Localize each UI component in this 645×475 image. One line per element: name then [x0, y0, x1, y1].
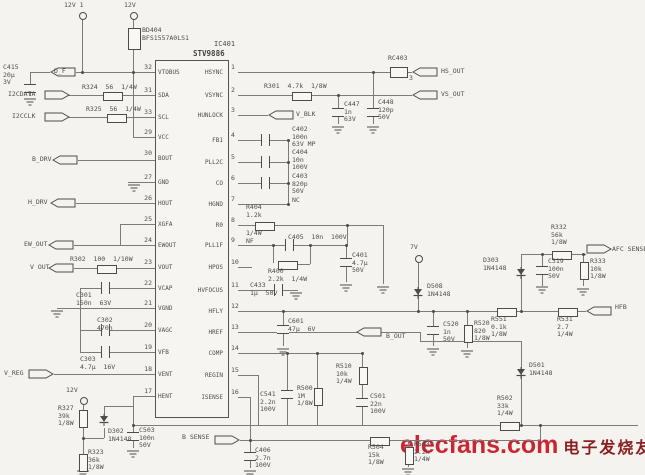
pin-number: 20 — [136, 321, 152, 329]
label-ew_out: EW_OUT — [24, 241, 47, 249]
resistor — [79, 454, 88, 472]
label-r325: R325 56 1/4W — [86, 106, 141, 114]
pin-name-comp: COMP — [160, 350, 223, 357]
wire — [54, 374, 155, 375]
wire — [373, 72, 374, 108]
pin-name-hgnd: HGND — [160, 201, 223, 208]
wire — [30, 72, 50, 73]
ground-icon — [24, 98, 36, 107]
label-v_reg: V_REG — [4, 370, 24, 378]
label-c448: C448 120p 50V — [378, 99, 394, 122]
wire — [273, 225, 383, 226]
wire — [521, 254, 522, 311]
wire — [250, 397, 251, 440]
pin-number: 5 — [231, 153, 235, 161]
pin-number: 10 — [231, 258, 239, 266]
terminal — [79, 12, 87, 20]
pin-name-href: HREF — [160, 329, 223, 336]
pin-number: 13 — [231, 323, 239, 331]
wire — [78, 160, 155, 161]
wire — [108, 330, 155, 331]
label-3: 3 — [409, 75, 413, 83]
wire — [57, 308, 155, 309]
ground-icon — [340, 284, 352, 293]
signal-flag-icon — [412, 67, 438, 77]
junction-dot — [132, 424, 135, 427]
ground-icon — [402, 468, 414, 475]
signal-flag-icon — [48, 240, 74, 250]
pin-name-pll1f: PLL1F — [160, 242, 223, 249]
pin-name-hsync: HSYNC — [160, 69, 223, 76]
pin-number: 8 — [231, 216, 235, 224]
label-d302: D302 1N4148 — [108, 428, 131, 443]
schematic-canvas: IC401 STV9886 elecfans.com电子发烧友 12V 112V… — [0, 0, 645, 475]
wire — [76, 72, 155, 73]
signal-flag-icon — [52, 155, 78, 165]
resistor — [97, 265, 117, 274]
wire — [80, 352, 101, 353]
label-r301: R301 4.7k 1/8W — [264, 83, 327, 91]
ic-part-number: STV9886 — [193, 49, 225, 58]
resistor — [314, 388, 323, 406]
label-d501: D501 1N4148 — [529, 362, 552, 377]
label-r332: R332 56k 1/8W — [551, 224, 567, 247]
wire — [258, 375, 259, 425]
junction-dot — [287, 203, 290, 206]
junction-dot — [432, 310, 435, 313]
pin-number: 30 — [136, 149, 152, 157]
label-r504: R504 15k 1/8W — [368, 444, 384, 467]
wire — [30, 72, 31, 84]
pin-number: 29 — [136, 128, 152, 136]
pin-number: 33 — [136, 108, 152, 116]
wire — [238, 183, 261, 184]
resistor — [292, 92, 312, 101]
label-r551: R551 0.1k 1/8W — [491, 316, 507, 339]
wire — [238, 95, 292, 96]
junction-dot — [316, 352, 319, 355]
wire — [76, 203, 155, 204]
diode-icon — [412, 287, 424, 299]
resistor — [107, 114, 127, 123]
label-c405: C405 10n 100V — [288, 234, 347, 242]
label-c447: C447 1n 63V — [344, 101, 360, 124]
junction-dot — [346, 224, 349, 227]
wire — [120, 224, 121, 245]
junction-dot — [520, 424, 523, 427]
junction-dot — [81, 71, 84, 74]
capacitor — [281, 390, 293, 399]
wire — [310, 245, 311, 264]
wire — [268, 183, 288, 184]
wire — [121, 95, 155, 96]
wire — [238, 397, 250, 398]
pin-number: 23 — [136, 258, 152, 266]
label-r404: R404 1.2k — [246, 204, 262, 219]
watermark: elecfans.com电子发烧友 — [400, 431, 645, 460]
signal-flag-icon — [28, 369, 54, 379]
wire — [388, 440, 540, 441]
signal-flag-icon — [586, 306, 612, 316]
label-r324: R324 56 1/4W — [82, 84, 137, 92]
wire — [540, 425, 541, 440]
ic-reference-label: IC401 — [214, 40, 235, 48]
ground-icon — [461, 350, 473, 359]
label-r502: R502 33k 1/4W — [497, 395, 513, 418]
wire — [346, 265, 347, 282]
wire — [420, 332, 421, 341]
wire — [120, 224, 155, 225]
label-1/4w: 1/4W NF — [246, 230, 262, 245]
label-r510: R510 10k 1/4W — [336, 363, 352, 386]
junction-dot — [309, 244, 312, 247]
wire — [82, 18, 83, 72]
label-c301: C301 150n 63V — [76, 292, 111, 307]
signal-flag-icon — [48, 263, 74, 273]
signal-flag-icon — [50, 198, 76, 208]
pin-name-hvfocus: HVFOCUS — [160, 287, 223, 294]
wire — [133, 396, 155, 397]
wire — [433, 311, 434, 326]
wire — [362, 383, 363, 398]
pin-number: 22 — [136, 279, 152, 287]
pin-number: 19 — [136, 343, 152, 351]
capacitor — [261, 134, 270, 146]
pin-name-hunlock: HUNLOCK — [160, 112, 223, 119]
label-c402: C402 100n 63V MP — [292, 126, 315, 149]
label-v_blk: V_BLK — [296, 111, 316, 119]
label-b_drv: B_DRV — [32, 156, 52, 164]
pin-number: 25 — [136, 215, 152, 223]
wire — [83, 438, 104, 439]
pin-number: 2 — [231, 86, 235, 94]
junction-dot — [249, 439, 252, 442]
diode-icon — [515, 267, 527, 279]
resistor — [500, 422, 520, 431]
wire — [108, 288, 155, 289]
signal-flag-icon — [214, 435, 240, 445]
label-c401: C401 4.7µ 50V — [352, 252, 368, 275]
wire — [64, 117, 107, 118]
wire — [408, 440, 409, 447]
wire — [238, 353, 362, 354]
resistor — [103, 92, 123, 101]
wire — [292, 245, 347, 246]
wire — [521, 341, 522, 425]
component-box — [128, 28, 141, 50]
wire — [125, 117, 155, 118]
pin-name-co: CO — [160, 180, 223, 187]
wire — [281, 290, 298, 291]
label-12v: 12V — [124, 2, 136, 10]
label-c501: C501 22n 100V — [370, 393, 386, 416]
label-r327: R327 39k 1/8W — [58, 405, 74, 428]
wire — [268, 162, 288, 163]
ground-icon — [51, 310, 63, 319]
wire — [521, 254, 552, 255]
wire — [310, 95, 412, 96]
label-c433: C433 1µ 50V — [250, 282, 277, 297]
pin-number: 27 — [136, 173, 152, 181]
wire — [238, 267, 252, 268]
wire — [273, 245, 274, 263]
label-c319: C319 100n 50V — [548, 258, 564, 281]
label-c403: C403 820p 50V — [292, 173, 308, 196]
junction-dot — [372, 71, 375, 74]
pin-name-pll2c: PLL2C — [160, 159, 223, 166]
junction-dot — [417, 310, 420, 313]
junction-dot — [287, 139, 290, 142]
wire — [128, 182, 155, 183]
pin-number: 9 — [231, 236, 235, 244]
wire — [133, 396, 134, 425]
junction-dot — [361, 352, 364, 355]
junction-dot — [82, 437, 85, 440]
capacitor — [340, 258, 352, 267]
junction-dot — [345, 244, 348, 247]
label-rc403: RC403 — [388, 55, 408, 63]
wire — [238, 72, 390, 73]
wire — [288, 140, 289, 204]
label-bd404: BD404 BFS1557A0LS1 — [142, 27, 189, 42]
watermark-cjk: 电子发烧友 — [563, 438, 645, 457]
capacitor — [332, 108, 344, 117]
pin-name-fb1: FB1 — [160, 137, 223, 144]
pin-number: 11 — [231, 281, 239, 289]
label-i2cclk: I2CCLK — [12, 113, 35, 121]
wire — [238, 140, 261, 141]
pin-number: 14 — [231, 344, 239, 352]
label-h_drv: H_DRV — [28, 199, 48, 207]
wire — [347, 225, 348, 245]
wire — [250, 440, 370, 441]
label-c406: C406 2.7n 100V — [255, 447, 271, 470]
label-c503: C503 100n 50V — [139, 427, 155, 450]
ground-icon — [290, 292, 302, 301]
label-r520: R520 820 1/8W — [474, 320, 490, 343]
resistor — [359, 367, 368, 385]
label-c404: C404 10n 100V — [292, 149, 308, 172]
terminal — [415, 255, 423, 263]
pin-number: 3 — [231, 106, 235, 114]
label-c302: C302 470n — [97, 317, 113, 332]
wire — [238, 115, 268, 116]
pin-number: 32 — [136, 63, 152, 71]
wire — [287, 353, 288, 390]
pin-number: 16 — [231, 388, 239, 396]
label-c415: C415 20µ 3V — [3, 64, 19, 87]
wire — [104, 406, 133, 407]
wire — [80, 288, 101, 289]
resistor — [79, 410, 88, 428]
ground-icon — [536, 286, 548, 295]
component-box — [390, 67, 408, 78]
junction-dot — [582, 253, 585, 256]
pin-number: 15 — [231, 366, 239, 374]
junction-dot — [287, 182, 290, 185]
signal-flag-icon — [44, 90, 70, 100]
wire — [268, 140, 288, 141]
ground-icon — [128, 184, 140, 193]
wire — [317, 404, 318, 425]
label-c303: C303 4.7µ 16V — [80, 356, 115, 371]
signal-flag-icon — [44, 112, 70, 122]
label-r531: R531 2.7 1/4W — [557, 316, 573, 339]
wire — [362, 353, 363, 367]
ground-icon — [377, 286, 389, 295]
pin-number: 21 — [136, 299, 152, 307]
label-d_f: D_F — [54, 68, 66, 76]
ground-icon — [577, 288, 589, 297]
wire — [115, 268, 155, 269]
wire — [317, 353, 318, 388]
pin-name-hfly: HFLY — [160, 308, 223, 315]
ground-icon — [367, 126, 379, 135]
label-r333: R333 10k 1/8W — [590, 258, 606, 281]
label-c520: C520 1n 50V — [443, 321, 459, 344]
label-nc: NC — [292, 197, 300, 205]
wire — [418, 261, 419, 311]
junction-dot — [132, 71, 135, 74]
label-c601: C601 47µ 6V — [288, 318, 315, 333]
wire — [287, 397, 288, 425]
capacitor — [261, 156, 270, 168]
label-r323: R323 36k 1/8W — [88, 449, 104, 472]
wire — [517, 425, 638, 426]
junction-dot — [282, 310, 285, 313]
ground-icon — [332, 126, 344, 135]
label-12v: 12V 1 — [64, 2, 84, 10]
pin-number: 6 — [231, 174, 235, 182]
wire — [362, 405, 363, 425]
wire — [383, 225, 384, 284]
pin-number: 7 — [231, 195, 235, 203]
capacitor — [261, 177, 270, 189]
junction-dot — [541, 253, 544, 256]
pin-name-r0: R0 — [160, 222, 223, 229]
wire — [74, 245, 155, 246]
ground-icon — [127, 450, 139, 459]
label-afc: AFC SENSE — [612, 246, 645, 254]
pin-number: 31 — [136, 86, 152, 94]
wire — [83, 426, 84, 454]
label-7v: 7V — [410, 244, 418, 252]
capacitor — [427, 326, 439, 335]
pin-number: 26 — [136, 194, 152, 202]
signal-flag-icon — [268, 110, 294, 120]
pin-number: 24 — [136, 236, 152, 244]
label-r302: R302 100 1/10W — [70, 256, 133, 264]
label-vs_out: VS_OUT — [441, 91, 464, 99]
ground-icon — [277, 348, 289, 357]
wire — [467, 311, 468, 325]
pin-name-regin: REGIN — [160, 372, 223, 379]
resistor — [464, 325, 473, 343]
junction-dot — [287, 161, 290, 164]
wire — [238, 225, 255, 226]
ground-icon — [244, 470, 256, 475]
pin-number: 12 — [231, 302, 239, 310]
wire — [283, 311, 284, 325]
wire — [238, 311, 497, 312]
signal-flag-icon — [586, 244, 612, 254]
wire — [238, 162, 261, 163]
pin-number: 17 — [136, 387, 152, 395]
label-v: V OUT — [30, 264, 50, 272]
label-r503: R503 2.2k 1/4W — [414, 441, 430, 464]
pin-number: 18 — [136, 365, 152, 373]
pin-name-isense: ISENSE — [160, 394, 223, 401]
diode-icon — [98, 414, 110, 426]
capacitor — [356, 398, 368, 407]
signal-flag-icon — [412, 90, 438, 100]
pin-name-vsync: VSYNC — [160, 92, 223, 99]
wire — [74, 268, 97, 269]
label-i2cdata: I2CDATA — [8, 91, 35, 99]
wire — [104, 428, 105, 438]
junction-dot — [539, 424, 542, 427]
label-b: B SENSE — [182, 434, 209, 442]
label-d508: D508 1N4148 — [427, 283, 450, 298]
wire — [133, 425, 500, 426]
label-12v: 12V — [66, 387, 78, 395]
wire — [133, 48, 134, 137]
ground-icon — [427, 348, 439, 357]
label-hfb: HFB — [615, 304, 627, 312]
terminal — [130, 12, 138, 20]
capacitor — [536, 266, 548, 275]
junction-dot — [466, 310, 469, 313]
signal-flag-icon — [356, 327, 382, 337]
resistor — [580, 262, 589, 280]
junction-dot — [520, 310, 523, 313]
label-r500: R500 1M 1/8W — [297, 385, 313, 408]
pin-number: 1 — [231, 63, 235, 71]
resistor — [405, 447, 414, 465]
wire — [283, 333, 284, 346]
pin-number: 4 — [231, 131, 235, 139]
wire — [238, 375, 258, 376]
label-d303: D303 1N4148 — [483, 257, 506, 272]
terminal — [80, 397, 88, 405]
junction-dot — [272, 244, 275, 247]
junction-dot — [337, 94, 340, 97]
wire — [108, 352, 155, 353]
label-b_out: B_OUT — [386, 333, 406, 341]
pin-name-hpos: HPOS — [160, 264, 223, 271]
diode-icon — [515, 367, 527, 379]
label-hs_out: HS_OUT — [441, 68, 464, 76]
wire — [133, 137, 155, 138]
label-c541: C541 2.2n 100V — [260, 391, 276, 414]
